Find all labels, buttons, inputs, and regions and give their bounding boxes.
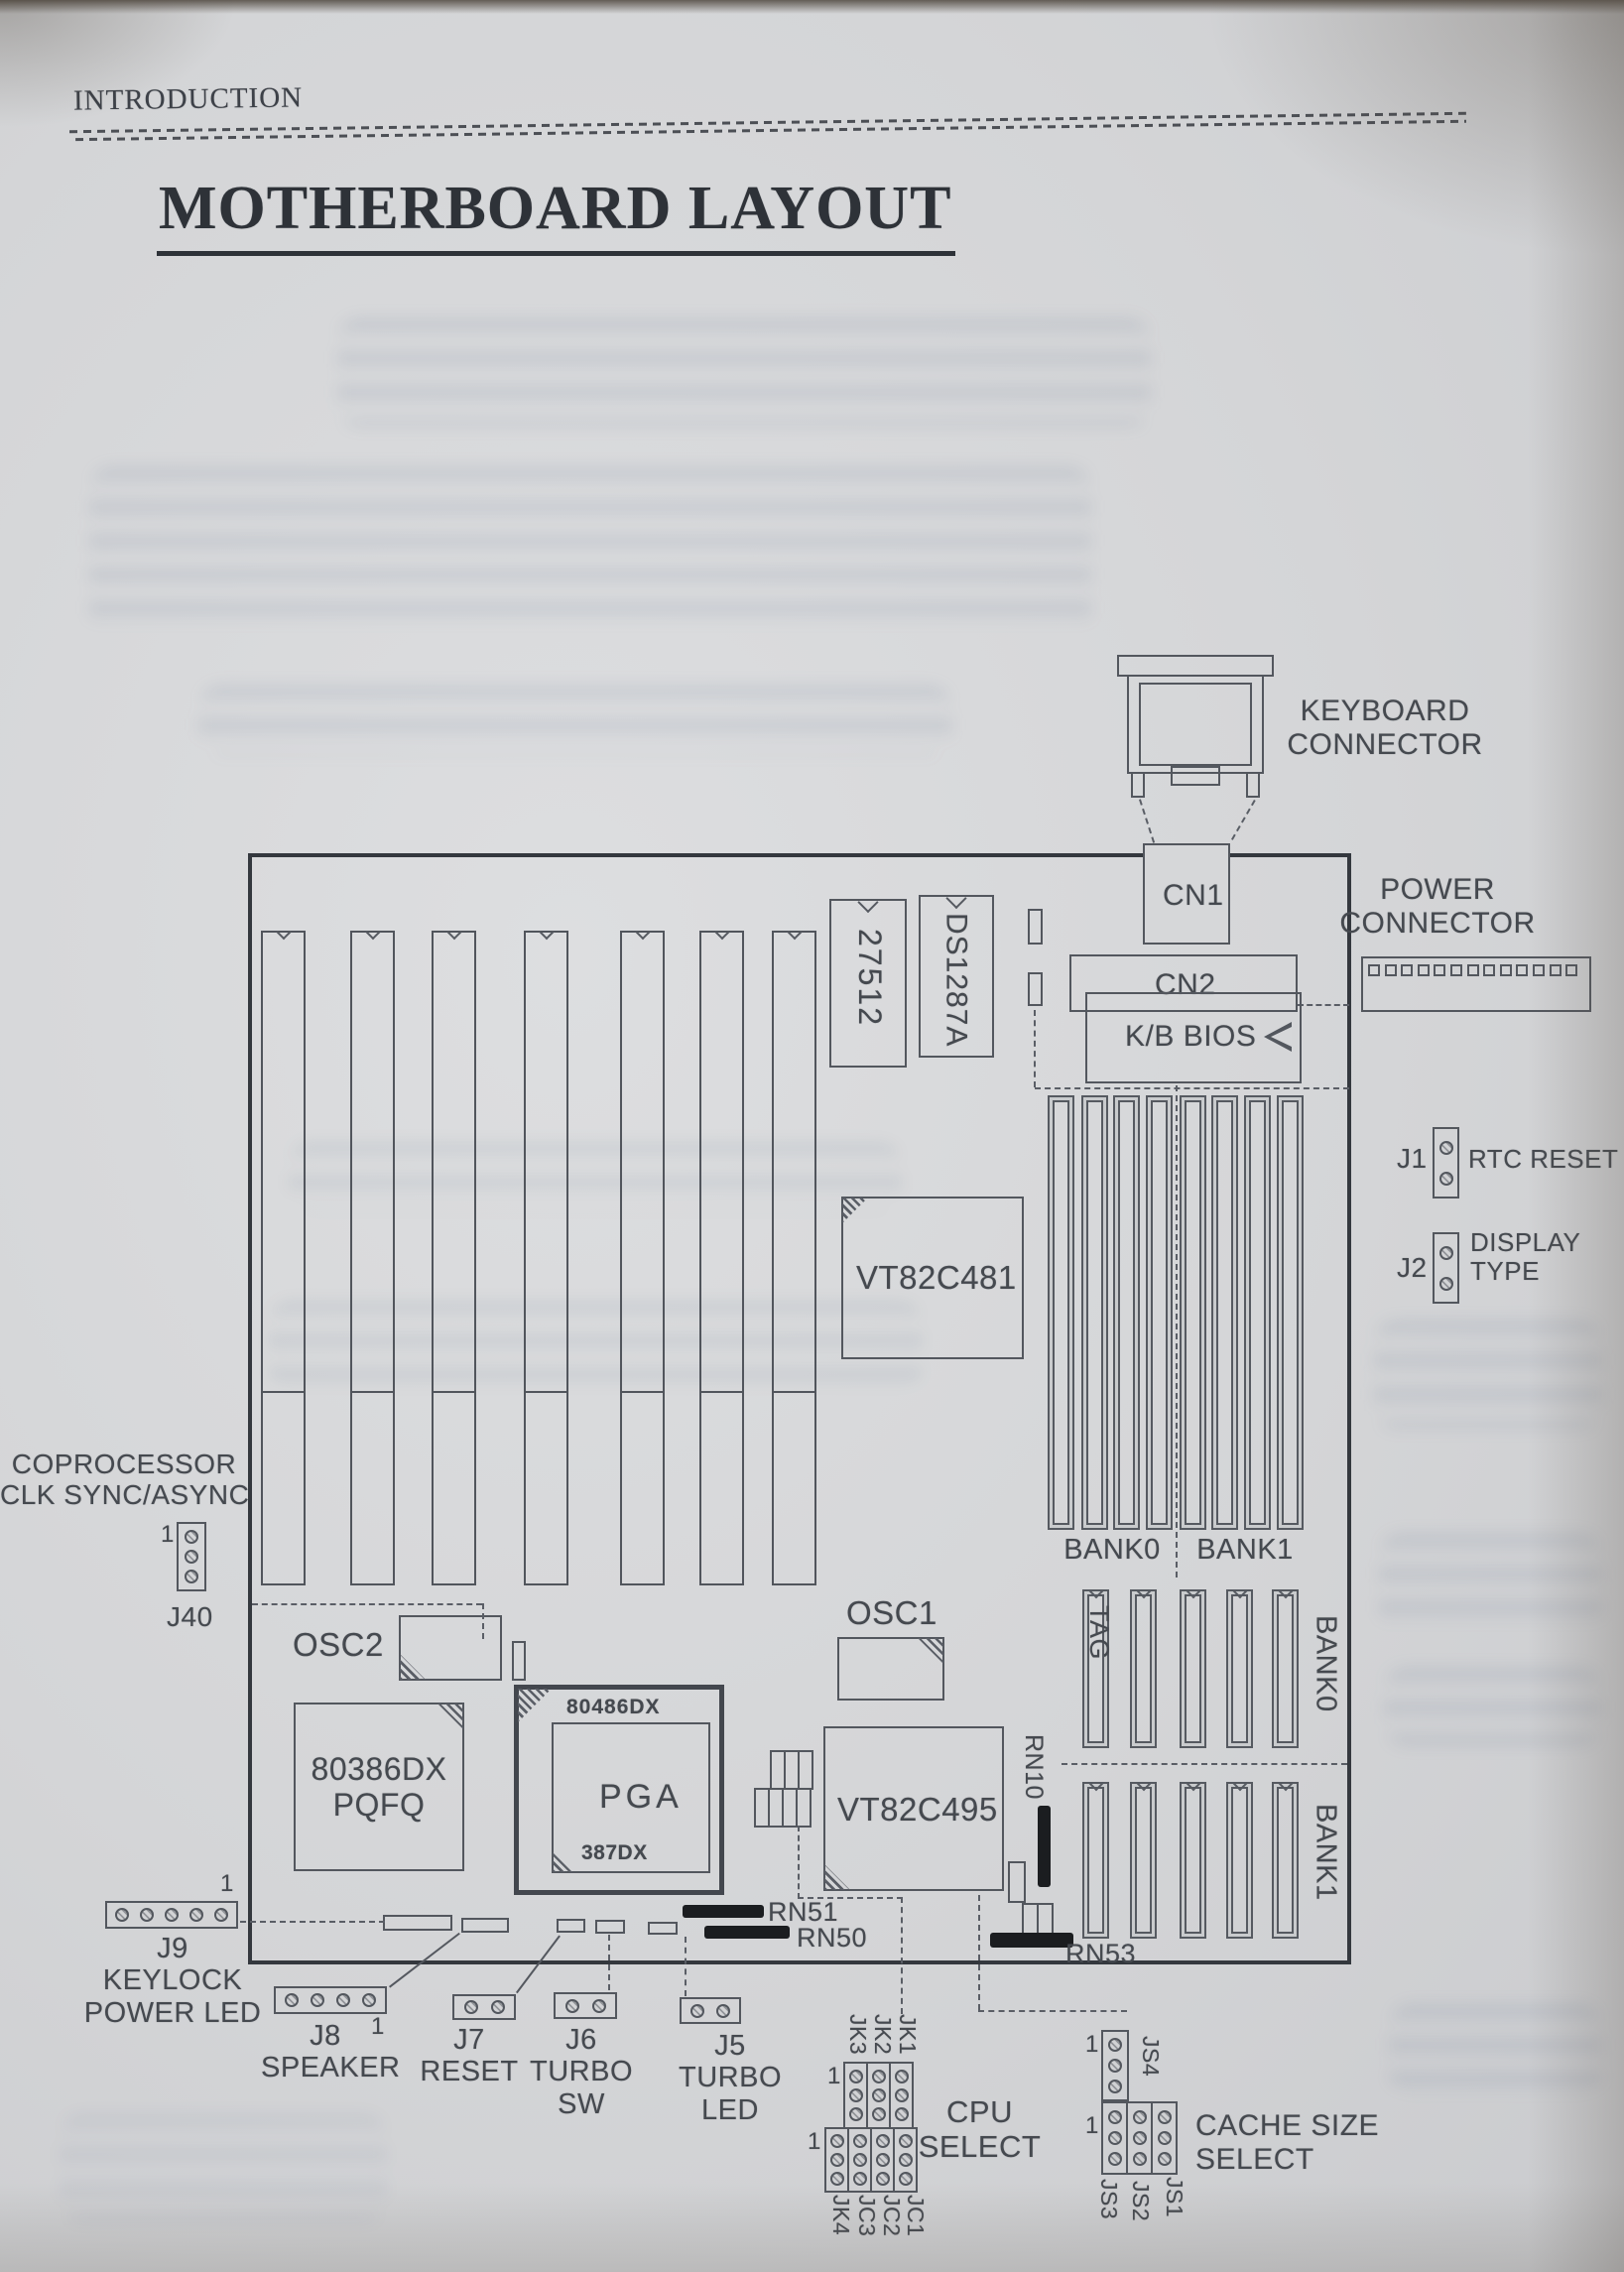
jumper-pin (1158, 2110, 1172, 2124)
corner-mark-icon (400, 1654, 426, 1680)
simm-slot (1277, 1095, 1304, 1530)
j6-desc1: TURBO (518, 2056, 645, 2087)
chip-corner-mark-icon (842, 1198, 868, 1223)
chip-corner-mark-icon (824, 1864, 850, 1890)
cpu-select-jumper-block-bottom (824, 2127, 918, 2193)
power-pin (1550, 964, 1562, 976)
jumper-pin (899, 2134, 913, 2148)
jumper-pin (853, 2153, 867, 2167)
j5-labels: J5 TURBO LED (667, 2030, 794, 2126)
jumper-pin (1439, 1141, 1453, 1155)
rtc-chip-ds1287a: DS1287A (919, 895, 994, 1058)
bleedthrough (198, 685, 952, 754)
rn51-resistor-network (683, 1905, 764, 1918)
j5-label: J5 (667, 2030, 794, 2062)
cache-slot (1272, 1589, 1299, 1748)
bleedthrough (1384, 1667, 1602, 1746)
cn1-label: CN1 (1163, 879, 1224, 913)
simm-slot (1180, 1095, 1206, 1530)
jumper-pin (362, 1993, 376, 2007)
jumper-pin (491, 2000, 505, 2014)
j8-labels: J8 SPEAKER (261, 2020, 390, 2084)
jumper-pin (214, 1908, 228, 1922)
cn1-connector: CN1 (1143, 843, 1230, 945)
jumper-pin (185, 1570, 198, 1583)
bleedthrough (337, 317, 1151, 427)
cache-slot (1272, 1782, 1299, 1939)
kb-bios-chip: K/B BIOS (1085, 992, 1302, 1083)
keyboard-callout-line-right (1231, 800, 1256, 840)
simm-slot (1244, 1095, 1271, 1530)
j6-desc2: SW (518, 2088, 645, 2120)
simm-slot (1211, 1095, 1238, 1530)
small-component (1008, 1861, 1026, 1903)
cache-slot (1226, 1589, 1253, 1748)
power-pin (1385, 964, 1397, 976)
jumper-pin (1108, 2038, 1122, 2052)
jumper-pin (565, 1999, 579, 2013)
cpu-select-title: CPU SELECT (918, 2095, 1042, 2164)
j2-label: J2 (1397, 1252, 1428, 1283)
jumper-pin (853, 2172, 867, 2186)
jumper-pin (716, 2004, 730, 2018)
bleedthrough (1389, 2004, 1602, 2093)
jk1-label: JK1 (894, 2014, 920, 2055)
keyboard-connector-tab-left (1131, 772, 1145, 798)
isa-slot (772, 931, 816, 1585)
j9-callout-dashed (240, 1921, 385, 1923)
j1-jumper (1433, 1127, 1459, 1199)
rn50-resistor-network (704, 1926, 790, 1939)
jumper-pin (849, 2070, 863, 2083)
keyboard-connector-flange (1117, 655, 1274, 677)
slot-divider (700, 1391, 743, 1393)
cache-tag-label: TAG (1084, 1605, 1114, 1660)
socket-corner-mark-icon (518, 1689, 552, 1722)
jumper-pin (895, 2070, 909, 2083)
js-pin1: 1 (1085, 2113, 1099, 2140)
jc3-label: JC3 (853, 2195, 879, 2236)
bank-divider-dashed (1176, 1085, 1178, 1578)
cache-slot (1130, 1782, 1157, 1939)
chipset1-label: VT82C481 (856, 1260, 1017, 1297)
dashed-line (978, 2010, 1127, 2012)
simm-bank1-label: BANK1 (1185, 1534, 1306, 1566)
j6-labels: J6 TURBO SW (518, 2024, 645, 2120)
jumper-pin (899, 2172, 913, 2186)
slot-divider (773, 1391, 815, 1393)
chip-corner-mark-icon (437, 1704, 463, 1729)
jumper-pin (876, 2153, 890, 2167)
jumper-pin (1108, 2059, 1122, 2073)
rtc-chip-label: DS1287A (939, 913, 973, 1047)
isa-slot (620, 931, 665, 1585)
simm-slot (1048, 1095, 1074, 1530)
bleedthrough (89, 466, 1091, 635)
header-pad (595, 1920, 625, 1934)
j2-desc: DISPLAY TYPE (1470, 1228, 1580, 1286)
osc2-oscillator (399, 1615, 502, 1681)
j5-desc1: TURBO (667, 2062, 794, 2093)
j8-desc: SPEAKER (261, 2052, 390, 2083)
js1-label: JS1 (1161, 2177, 1187, 2217)
pga-label: PGA (599, 1778, 683, 1816)
j7-label: J7 (405, 2024, 534, 2056)
jumper-pin (1439, 1277, 1453, 1291)
cache-slot (1130, 1589, 1157, 1748)
js4-label: JS4 (1137, 2036, 1163, 2077)
manual-page: INTRODUCTION MOTHERBOARD LAYOUT KEYBOARD… (0, 0, 1624, 2272)
jk-top-pin1: 1 (827, 2064, 841, 2090)
slot-divider (433, 1391, 475, 1393)
cache-slot (1082, 1782, 1109, 1939)
osc1-oscillator (837, 1637, 944, 1701)
jc2-label: JC2 (878, 2195, 904, 2236)
jumper-column (866, 2062, 891, 2129)
header-pad (383, 1915, 452, 1931)
jumper-pin (1158, 2152, 1172, 2166)
j6-callout-dashed (608, 1935, 610, 1990)
jumper-pin (895, 2107, 909, 2121)
jumper-pin (140, 1908, 154, 1922)
cache-divider-dashed (1062, 1763, 1347, 1765)
keyboard-connector-label: KEYBOARD CONNECTOR (1280, 694, 1490, 761)
j9-desc2: POWER LED (59, 1997, 287, 2029)
jumper-column (1126, 2101, 1153, 2175)
j9-desc1: KEYLOCK (59, 1964, 287, 1996)
jk2-label: JK2 (869, 2014, 895, 2055)
dashed-line (798, 1897, 903, 1899)
j2-jumper (1433, 1232, 1459, 1304)
j5-connector (680, 1997, 741, 2024)
cache-bank1-label: BANK1 (1310, 1804, 1341, 1901)
jumper-pin (895, 2088, 909, 2102)
page-top-edge-shadow (0, 0, 1624, 14)
power-pin (1368, 964, 1380, 976)
cache-slot (1226, 1782, 1253, 1939)
cache-select-jumper-block (1101, 2101, 1178, 2175)
jumper-column (1101, 2101, 1128, 2175)
jumper-pin (185, 1530, 198, 1544)
power-pin (1418, 964, 1430, 976)
jumper-pin (336, 1993, 350, 2007)
osc2-label: OSC2 (293, 1627, 384, 1664)
jumper-pin (464, 2000, 478, 2014)
jk3-label: JK3 (844, 2014, 870, 2055)
js4-pin1: 1 (1085, 2032, 1099, 2059)
jk-bottom-pin1: 1 (808, 2129, 821, 2156)
dashed-line (901, 1897, 903, 2014)
j9-pin1: 1 (220, 1871, 234, 1898)
j40-label: J40 (167, 1601, 213, 1632)
j7-connector (452, 1994, 516, 2020)
jumper-pin (853, 2134, 867, 2148)
kicker-dashed-rule (69, 112, 1466, 142)
dashed-line (978, 1895, 980, 2010)
cache-select-title: CACHE SIZE SELECT (1195, 2109, 1379, 2176)
power-pin (1565, 964, 1577, 976)
jumper-column (893, 2127, 918, 2193)
crystal-cell (798, 1750, 813, 1790)
dashed-line (1034, 1010, 1036, 1087)
jumper-pin (830, 2134, 844, 2148)
slot-divider (351, 1391, 394, 1393)
jumper-pin (1133, 2131, 1147, 2145)
isa-slot (350, 931, 395, 1585)
jumper-pin (189, 1908, 203, 1922)
header-pad (648, 1922, 678, 1935)
page-corner-shadow-tr (1171, 0, 1624, 278)
j9-label: J9 (59, 1933, 287, 1964)
isa-slot (524, 931, 568, 1585)
jumper-pin (1439, 1172, 1453, 1186)
jk4-label: JK4 (827, 2195, 853, 2235)
jumper-pin (1108, 2080, 1122, 2093)
j9-labels: J9 KEYLOCK POWER LED (59, 1933, 287, 2029)
keyboard-connector-key-slot (1171, 766, 1220, 786)
power-pin (1467, 964, 1479, 976)
j6-connector (554, 1992, 617, 2019)
dashed-line (252, 1603, 482, 1605)
js3-label: JS3 (1095, 2179, 1121, 2219)
page-title: MOTHERBOARD LAYOUT (157, 175, 955, 256)
jumper-pin (872, 2070, 886, 2083)
j5-callout-dashed (685, 1937, 687, 1996)
power-connector-label: POWER CONNECTOR (1329, 873, 1546, 940)
dashed-line (798, 1826, 800, 1899)
corner-mark-icon (918, 1638, 943, 1664)
cache-bank0-label: BANK0 (1310, 1615, 1341, 1712)
isa-slot (699, 931, 744, 1585)
rom-chip-label: 27512 (851, 929, 887, 1027)
power-pin (1500, 964, 1512, 976)
power-pin (1516, 964, 1528, 976)
j40-jumper (177, 1522, 206, 1591)
rn10-label: RN10 (1020, 1734, 1048, 1800)
jumper-pin (690, 2004, 704, 2018)
small-component (512, 1641, 526, 1681)
power-connector (1361, 956, 1591, 1012)
slot-divider (621, 1391, 664, 1393)
keyboard-connector-inner (1139, 683, 1252, 766)
jumper-pin (876, 2172, 890, 2186)
cpu-pqfp-label: 80386DX PQFQ (296, 1752, 462, 1824)
js2-label: JS2 (1127, 2181, 1153, 2221)
rn53-label: RN53 (1065, 1939, 1136, 1968)
page-right-edge-shadow (1528, 0, 1624, 2272)
jumper-pin (830, 2172, 844, 2186)
387dx-label: 387DX (581, 1841, 648, 1865)
socket-corner-mark-icon (553, 1852, 572, 1872)
jumper-pin (311, 1993, 324, 2007)
power-pin (1401, 964, 1413, 976)
bleedthrough (60, 2113, 387, 2222)
jumper-pin (849, 2107, 863, 2121)
simm-bank0-label: BANK0 (1052, 1534, 1173, 1566)
j9-connector (105, 1901, 238, 1929)
power-pin (1434, 964, 1445, 976)
jumper-pin (115, 1908, 129, 1922)
slot-divider (262, 1391, 305, 1393)
jumper-pin (876, 2134, 890, 2148)
bleedthrough (1379, 1533, 1602, 1632)
pga-inner-socket: PGA 387DX (552, 1722, 710, 1873)
jumper-column (843, 2062, 868, 2129)
j7-labels: J7 RESET (405, 2024, 534, 2088)
jumper-pin (1108, 2110, 1122, 2124)
cpu-select-jumper-block-top (843, 2062, 914, 2129)
osc1-label: OSC1 (846, 1595, 937, 1632)
jumper-column (847, 2127, 872, 2193)
small-component (1028, 909, 1043, 945)
keyboard-callout-line-left (1139, 799, 1155, 842)
jumper-pin (849, 2088, 863, 2102)
rom-chip-27512: 27512 (829, 899, 907, 1068)
kb-bios-label: K/B BIOS (1125, 1020, 1256, 1054)
keyboard-connector-tab-right (1246, 772, 1260, 798)
j1-desc: RTC RESET (1468, 1145, 1618, 1174)
simm-slot (1113, 1095, 1140, 1530)
cache-slot (1180, 1782, 1206, 1939)
dashed-line (1035, 1087, 1349, 1089)
jumper-pin (1133, 2110, 1147, 2124)
j40-desc: COPROCESSOR CLK SYNC/ASYNC (0, 1449, 248, 1511)
j8-connector (274, 1986, 387, 2014)
dashed-line (482, 1603, 484, 1639)
slot-divider (525, 1391, 567, 1393)
jumper-column (870, 2127, 895, 2193)
simm-slot (1081, 1095, 1108, 1530)
jumper-pin (899, 2153, 913, 2167)
jumper-column (1151, 2101, 1178, 2175)
jumper-column (889, 2062, 914, 2129)
socket-label: 80486DX (566, 1696, 661, 1719)
jumper-column (824, 2127, 849, 2193)
cpu-80386dx-pqfp: 80386DX PQFQ (294, 1703, 464, 1871)
page-kicker: INTRODUCTION (73, 81, 304, 117)
jumper-pin (1439, 1246, 1453, 1260)
crystal-grid-bottom (754, 1788, 817, 1828)
rn10-resistor-network (1038, 1806, 1051, 1887)
jumper-pin (185, 1550, 198, 1564)
jumper-pin (1108, 2152, 1122, 2166)
j1-label: J1 (1397, 1143, 1428, 1174)
jumper-pin (872, 2107, 886, 2121)
cache-slot (1180, 1589, 1206, 1748)
j5-desc2: LED (667, 2094, 794, 2126)
jumper-pin (1158, 2131, 1172, 2145)
j8-label: J8 (261, 2020, 390, 2052)
crystal-grid-top (770, 1750, 817, 1790)
jumper-pin (165, 1908, 179, 1922)
power-pin (1483, 964, 1495, 976)
crystal-cell (796, 1788, 812, 1828)
jc1-label: JC1 (902, 2195, 928, 2236)
power-pin (1533, 964, 1545, 976)
j6-label: J6 (518, 2024, 645, 2056)
cpu-socket-80486dx: 80486DX PGA 387DX (514, 1685, 724, 1895)
jumper-pin (830, 2153, 844, 2167)
jumper-pin (592, 1999, 606, 2013)
js4-jumper (1101, 2030, 1129, 2101)
j40-pin1: 1 (161, 1522, 175, 1549)
simm-slot (1146, 1095, 1173, 1530)
isa-slot (432, 931, 476, 1585)
chipset2-label: VT82C495 (837, 1792, 998, 1829)
power-pin (1450, 964, 1462, 976)
jumper-pin (872, 2088, 886, 2102)
cn2-edge-dashed-line (1298, 1004, 1349, 1006)
jumper-pin (1108, 2131, 1122, 2145)
rn53-resistor-network (990, 1933, 1073, 1948)
small-component (1037, 1903, 1054, 1935)
header-pad (557, 1919, 585, 1933)
bleedthrough (1374, 1320, 1602, 1429)
isa-slot (261, 931, 306, 1585)
chipset-vt82c481: VT82C481 (841, 1197, 1024, 1359)
header-pad (461, 1918, 509, 1933)
jumper-pin (285, 1993, 299, 2007)
small-component (1028, 972, 1043, 1006)
rn50-label: RN50 (797, 1923, 867, 1953)
chipset-vt82c495: VT82C495 (823, 1726, 1004, 1891)
j7-desc: RESET (405, 2056, 534, 2087)
jumper-pin (1133, 2152, 1147, 2166)
